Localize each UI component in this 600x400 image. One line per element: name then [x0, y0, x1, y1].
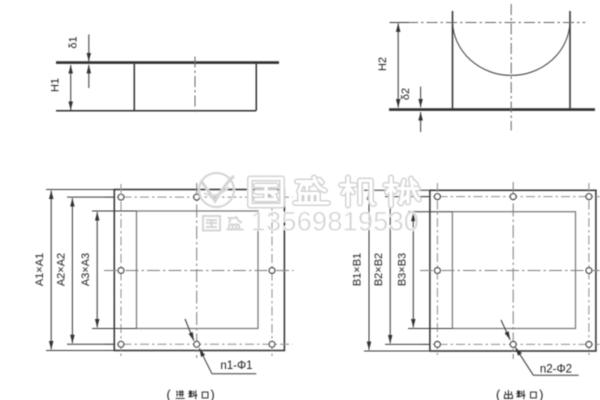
svg-text:n1-Φ1: n1-Φ1: [220, 360, 252, 372]
svg-text:δ1: δ1: [68, 36, 80, 48]
svg-text:H1: H1: [50, 78, 62, 92]
svg-text:): ): [211, 388, 215, 400]
svg-text:δ2: δ2: [400, 88, 412, 100]
svg-text:A2×A2: A2×A2: [56, 253, 68, 286]
svg-text:): ): [539, 388, 543, 400]
svg-text:B1×B1: B1×B1: [352, 253, 364, 286]
svg-text:H2: H2: [377, 57, 389, 71]
svg-text:n2-Φ2: n2-Φ2: [540, 364, 572, 376]
svg-text:B3×B3: B3×B3: [397, 253, 409, 286]
svg-text:A1×A1: A1×A1: [34, 253, 46, 286]
svg-text:B2×B2: B2×B2: [373, 253, 385, 286]
svg-text:13569819530: 13569819530: [251, 207, 419, 237]
svg-text:A3×A3: A3×A3: [80, 253, 92, 286]
